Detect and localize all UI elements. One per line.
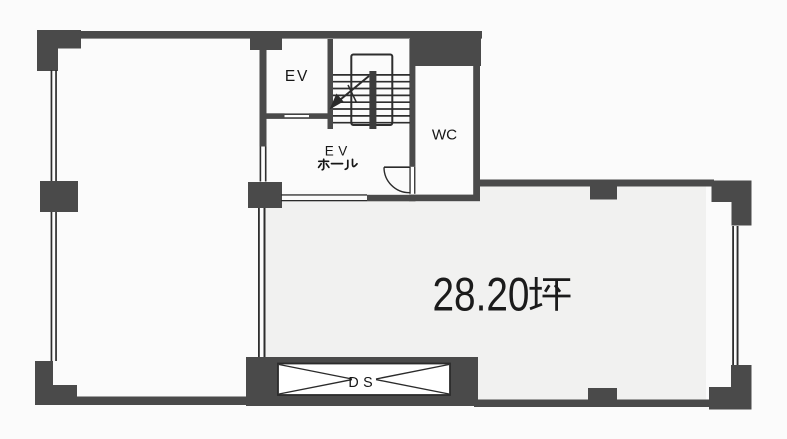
svg-text:EV: EV [285, 68, 309, 85]
svg-text:EV: EV [325, 144, 352, 159]
svg-text:DS: DS [348, 375, 377, 391]
svg-text:WC: WC [432, 126, 457, 143]
svg-text:28.20: 28.20 [433, 268, 530, 321]
